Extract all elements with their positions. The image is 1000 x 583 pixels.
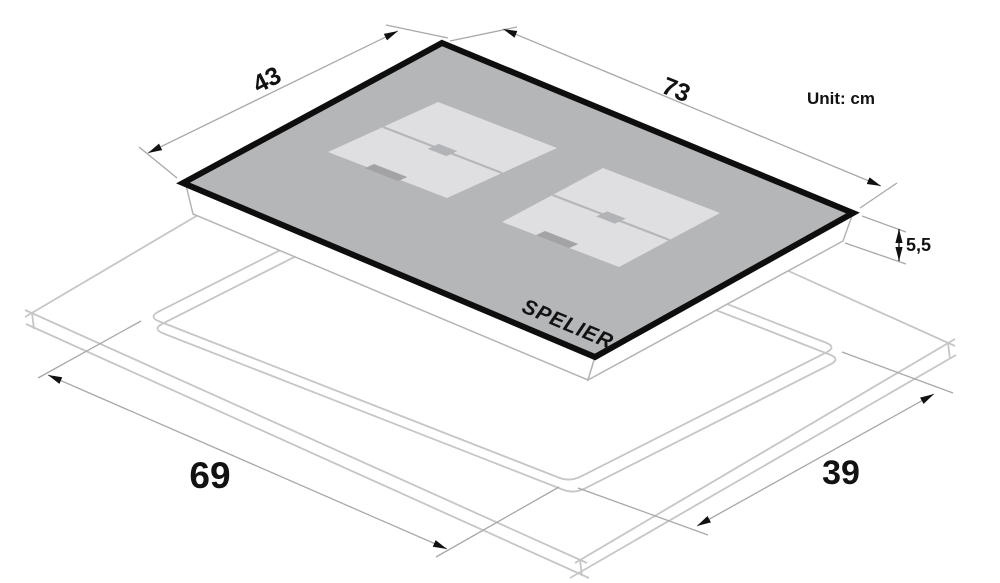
dimension-cutout-depth	[578, 352, 953, 535]
glass-width-label: 73	[658, 72, 694, 108]
cutout-depth-label: 39	[822, 454, 860, 492]
extension-line	[450, 27, 517, 41]
extension-line	[139, 147, 177, 178]
unit-label: Unit: cm	[807, 89, 875, 108]
cutout-width-label: 69	[189, 455, 230, 496]
body-height-label: 5,5	[906, 235, 931, 255]
glass-depth-label: 43	[248, 61, 285, 99]
extension-line	[845, 243, 906, 264]
dimension-body-height	[845, 216, 906, 264]
extension-line	[436, 487, 559, 557]
extension-line	[386, 25, 448, 38]
extension-line	[578, 488, 708, 535]
cooktop-dimension-diagram: SPELIER 43 73 5,5 69 39 Unit: cm	[0, 0, 1000, 583]
dimension-line-69	[48, 375, 447, 549]
worktop-corner-right-vertical	[948, 343, 950, 359]
extension-line	[842, 352, 953, 393]
diagram-canvas: SPELIER 43 73 5,5 69 39 Unit: cm	[0, 0, 1000, 583]
extension-line	[860, 183, 897, 208]
worktop-thickness-edge-left	[26, 324, 589, 578]
dimension-cutout-width	[38, 321, 559, 557]
worktop-edge-front-left	[25, 310, 587, 563]
glass-panel	[183, 43, 853, 357]
